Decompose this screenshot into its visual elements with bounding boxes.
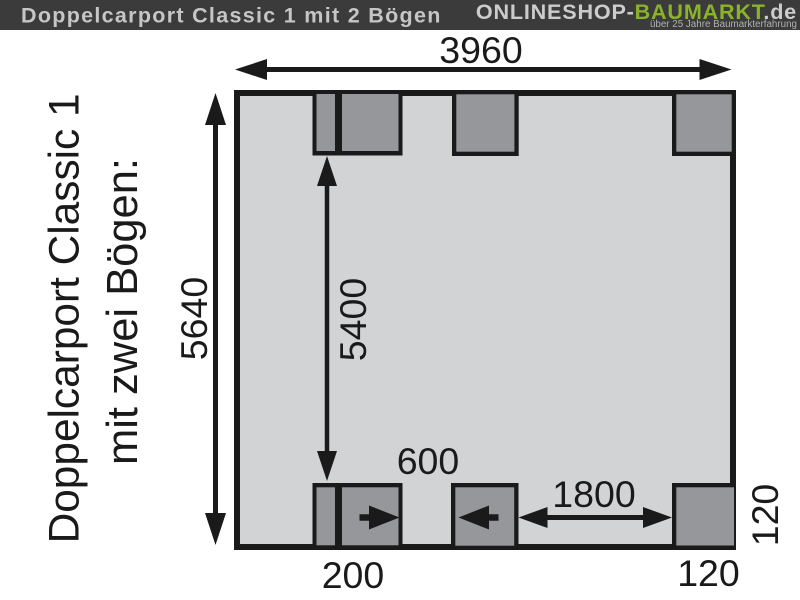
svg-text:Doppelcarport Classic 1 mit 2: Doppelcarport Classic 1 mit 2 Bögen [21, 4, 442, 28]
svg-text:5400: 5400 [332, 278, 374, 361]
svg-text:200: 200 [322, 554, 385, 596]
svg-text:über 25 Jahre Baumarkterfahrun: über 25 Jahre Baumarkterfahrung [650, 19, 797, 30]
svg-text:Doppelcarport Classic 1: Doppelcarport Classic 1 [41, 93, 88, 543]
svg-text:120: 120 [677, 552, 740, 594]
svg-text:mit zwei Bögen:: mit zwei Bögen: [99, 158, 147, 465]
svg-text:600: 600 [397, 440, 460, 482]
svg-text:120: 120 [744, 484, 786, 547]
svg-text:5640: 5640 [173, 277, 215, 360]
svg-text:3960: 3960 [439, 29, 522, 71]
svg-text:1800: 1800 [552, 473, 635, 515]
